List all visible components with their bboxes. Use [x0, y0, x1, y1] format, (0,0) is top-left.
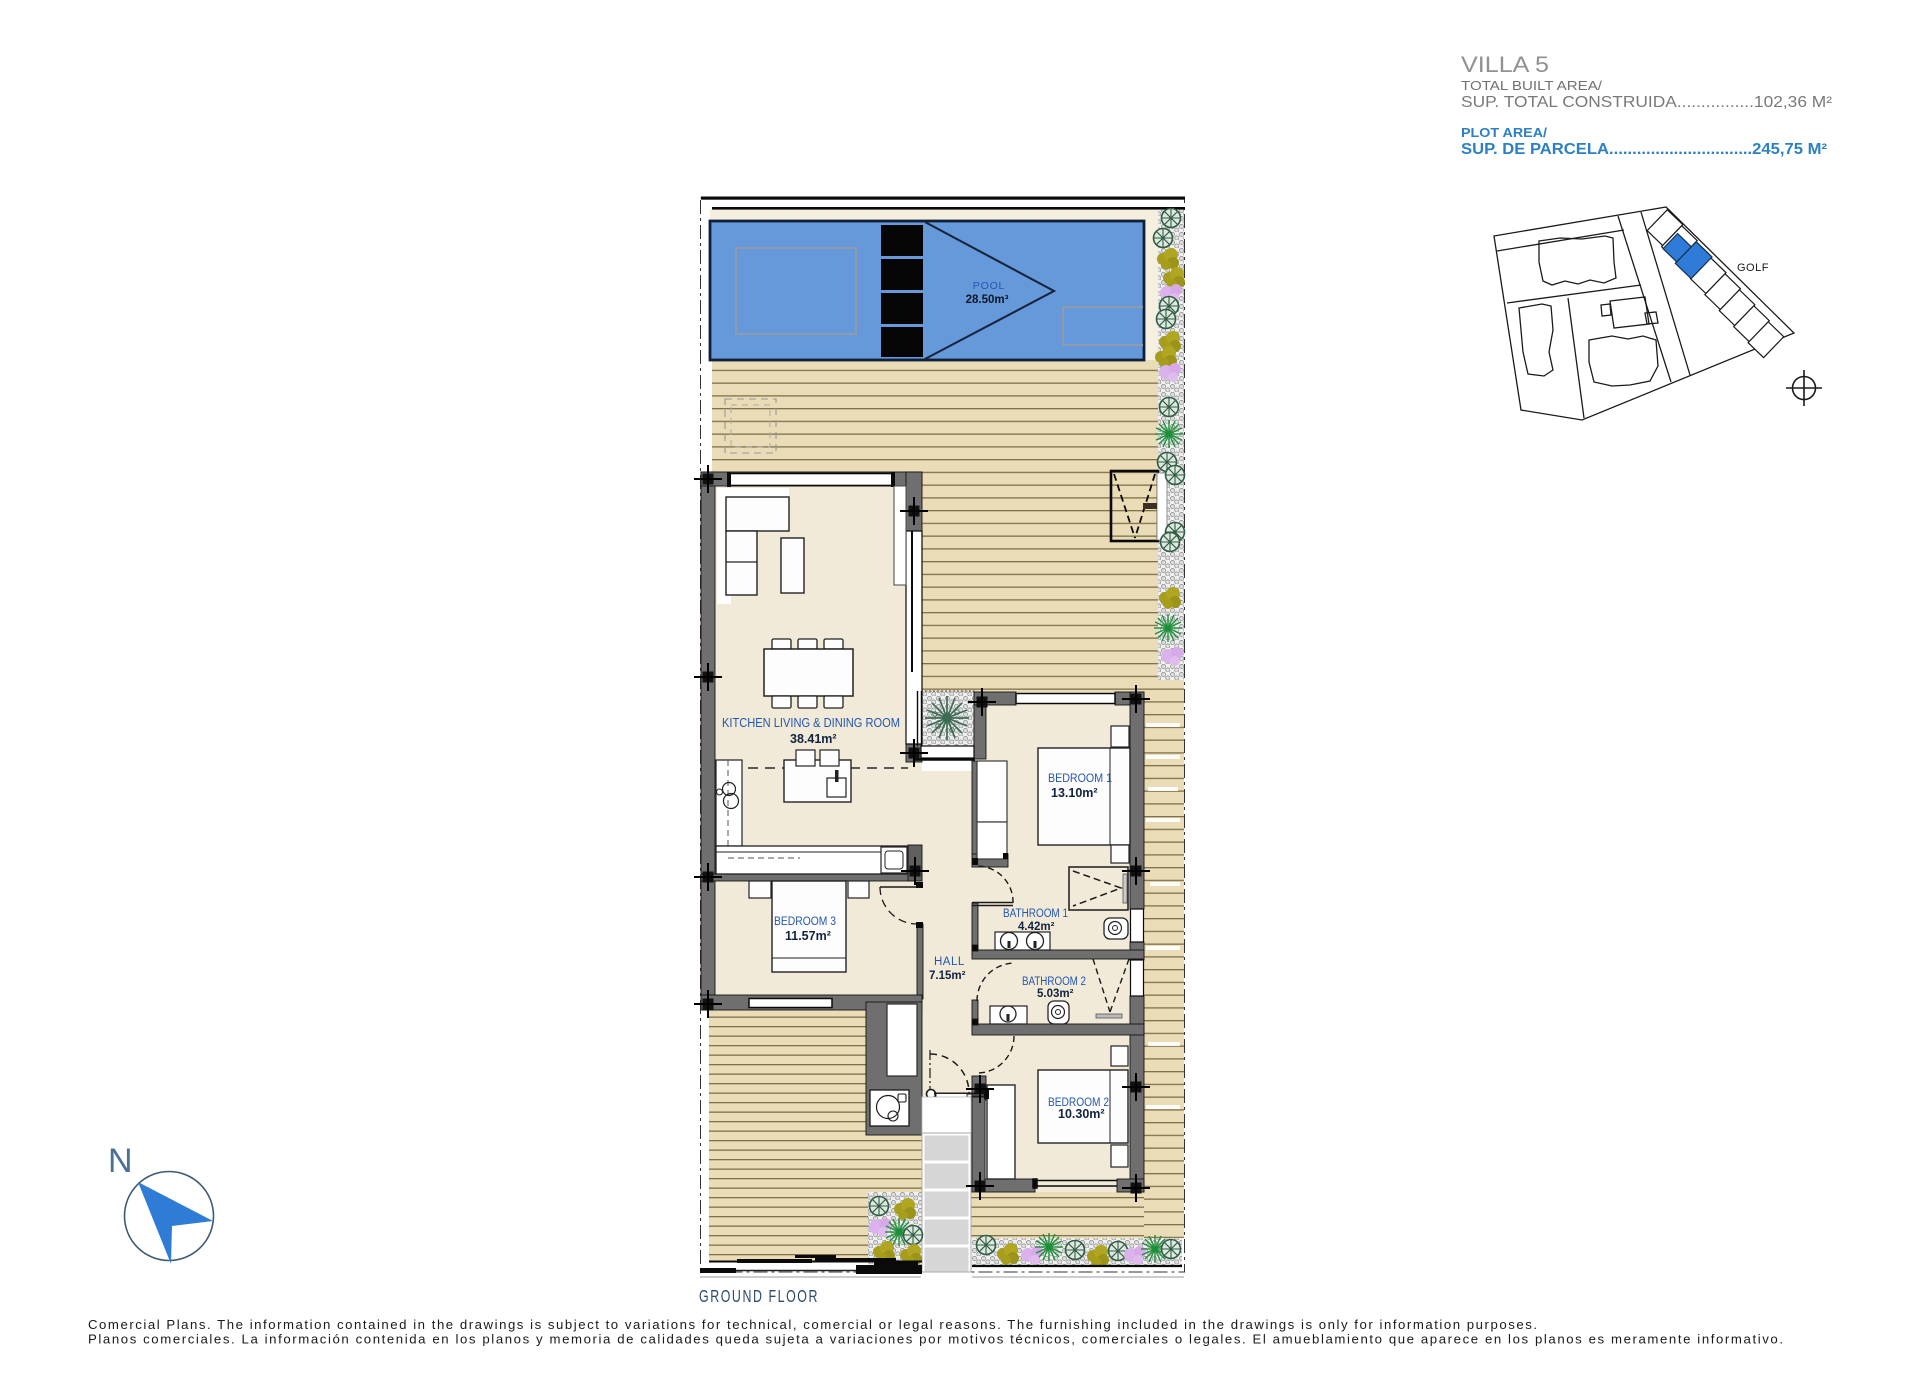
svg-text:PLOT AREA/: PLOT AREA/ [1461, 125, 1547, 140]
svg-text:10.30m²: 10.30m² [1058, 1107, 1105, 1121]
svg-text:N: N [108, 1142, 133, 1180]
svg-text:KITCHEN LIVING & DINING R: KITCHEN LIVING & DINING ROOM [722, 716, 900, 730]
svg-text:SUP. TOTAL CONSTRUIDA.........: SUP. TOTAL CONSTRUIDA................102… [1461, 94, 1832, 111]
svg-text:GROUND FLOOR: GROUND FLOOR [699, 1286, 819, 1306]
svg-text:BEDROOM 1: BEDROOM 1 [1048, 773, 1112, 785]
svg-text:TOTAL BUILT AREA/: TOTAL BUILT AREA/ [1461, 78, 1602, 93]
svg-text:BATHROOM 2: BATHROOM 2 [1022, 976, 1086, 988]
svg-text:GOLF: GOLF [1737, 262, 1769, 274]
svg-text:SUP. DE PARCELA...............: SUP. DE PARCELA.........................… [1461, 141, 1827, 158]
svg-text:11.57m²: 11.57m² [785, 929, 831, 943]
svg-text:HALL: HALL [934, 956, 965, 968]
svg-text:Comercial Plans. The informati: Comercial Plans. The information contain… [88, 1317, 1537, 1332]
svg-text:BEDROOM 3: BEDROOM 3 [774, 916, 836, 928]
svg-text:POOL: POOL [973, 280, 1005, 292]
svg-text:BATHROOM 1: BATHROOM 1 [1003, 908, 1068, 920]
svg-text:13.10m²: 13.10m² [1051, 786, 1098, 800]
svg-text:7.15m²: 7.15m² [929, 970, 966, 982]
svg-text:38.41m²: 38.41m² [790, 732, 837, 746]
svg-text:VILLA 5: VILLA 5 [1461, 52, 1549, 77]
svg-text:4.42m²: 4.42m² [1018, 921, 1055, 933]
svg-text:5.03m²: 5.03m² [1037, 988, 1074, 1000]
svg-text:28.50m³: 28.50m³ [966, 294, 1009, 306]
